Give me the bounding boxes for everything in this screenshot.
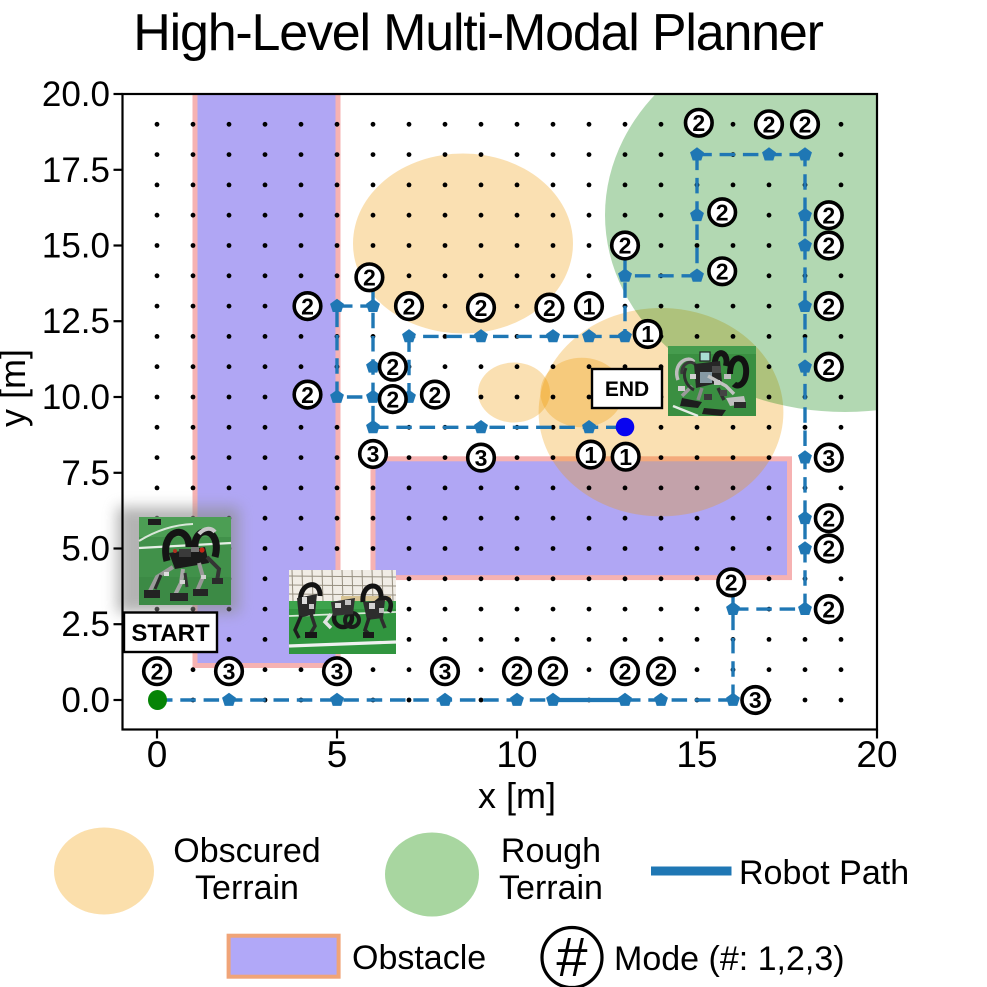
- svg-text:Mode (#: 1,2,3): Mode (#: 1,2,3): [614, 940, 845, 978]
- svg-text:2: 2: [511, 658, 524, 684]
- svg-text:2: 2: [822, 596, 835, 622]
- svg-text:2: 2: [151, 658, 164, 684]
- svg-text:10.0: 10.0: [42, 378, 110, 417]
- svg-text:12.5: 12.5: [42, 302, 110, 341]
- svg-text:Rough: Rough: [501, 832, 601, 870]
- svg-text:1: 1: [583, 293, 596, 319]
- svg-text:2: 2: [301, 382, 314, 408]
- svg-text:2: 2: [799, 112, 812, 138]
- svg-text:END: END: [605, 378, 649, 401]
- svg-text:2: 2: [547, 658, 560, 684]
- svg-text:1: 1: [641, 321, 654, 347]
- svg-text:Obstacle: Obstacle: [352, 939, 486, 977]
- svg-text:2: 2: [475, 295, 488, 321]
- svg-text:3: 3: [822, 445, 835, 471]
- svg-text:7.5: 7.5: [61, 454, 110, 493]
- svg-text:3: 3: [439, 658, 452, 684]
- svg-text:2: 2: [822, 293, 835, 319]
- svg-text:2: 2: [716, 259, 729, 285]
- svg-text:2: 2: [619, 658, 632, 684]
- svg-text:3: 3: [475, 445, 488, 471]
- svg-text:2: 2: [692, 110, 705, 136]
- svg-text:#: #: [556, 925, 587, 987]
- svg-text:2: 2: [763, 112, 776, 138]
- svg-text:5: 5: [327, 734, 348, 775]
- svg-text:x [m]: x [m]: [478, 775, 556, 816]
- svg-text:2: 2: [386, 386, 399, 412]
- svg-text:3: 3: [223, 658, 236, 684]
- svg-text:17.5: 17.5: [42, 151, 110, 190]
- svg-text:20: 20: [856, 734, 897, 775]
- svg-text:2: 2: [543, 295, 556, 321]
- svg-text:Terrain: Terrain: [499, 869, 603, 907]
- svg-text:2: 2: [822, 354, 835, 380]
- svg-text:2: 2: [725, 570, 738, 596]
- svg-text:Robot Path: Robot Path: [739, 854, 909, 892]
- svg-text:High-Level Multi-Modal Planner: High-Level Multi-Modal Planner: [133, 4, 823, 62]
- svg-text:2: 2: [619, 233, 632, 259]
- svg-text:1: 1: [619, 444, 632, 470]
- svg-text:15: 15: [676, 734, 717, 775]
- svg-text:2: 2: [386, 354, 399, 380]
- svg-text:2: 2: [716, 199, 729, 225]
- svg-text:2: 2: [822, 233, 835, 259]
- svg-text:0: 0: [147, 734, 168, 775]
- svg-text:2: 2: [301, 293, 314, 319]
- svg-text:2: 2: [822, 536, 835, 562]
- svg-text:2: 2: [429, 382, 442, 408]
- svg-text:15.0: 15.0: [42, 227, 110, 266]
- svg-text:2.5: 2.5: [61, 605, 110, 644]
- svg-text:Terrain: Terrain: [195, 869, 299, 907]
- svg-text:2: 2: [403, 293, 416, 319]
- svg-text:Obscured: Obscured: [173, 832, 320, 870]
- svg-text:3: 3: [749, 687, 762, 713]
- svg-text:10: 10: [496, 734, 537, 775]
- svg-text:0.0: 0.0: [61, 681, 110, 720]
- svg-text:2: 2: [363, 265, 376, 291]
- svg-text:5.0: 5.0: [61, 530, 110, 569]
- svg-text:2: 2: [655, 658, 668, 684]
- svg-text:2: 2: [822, 505, 835, 531]
- svg-text:20.0: 20.0: [42, 75, 110, 114]
- svg-text:1: 1: [584, 442, 597, 468]
- svg-text:START: START: [131, 620, 210, 647]
- svg-text:3: 3: [331, 658, 344, 684]
- svg-text:2: 2: [822, 202, 835, 228]
- svg-text:y [m]: y [m]: [0, 349, 33, 427]
- svg-text:3: 3: [367, 441, 380, 467]
